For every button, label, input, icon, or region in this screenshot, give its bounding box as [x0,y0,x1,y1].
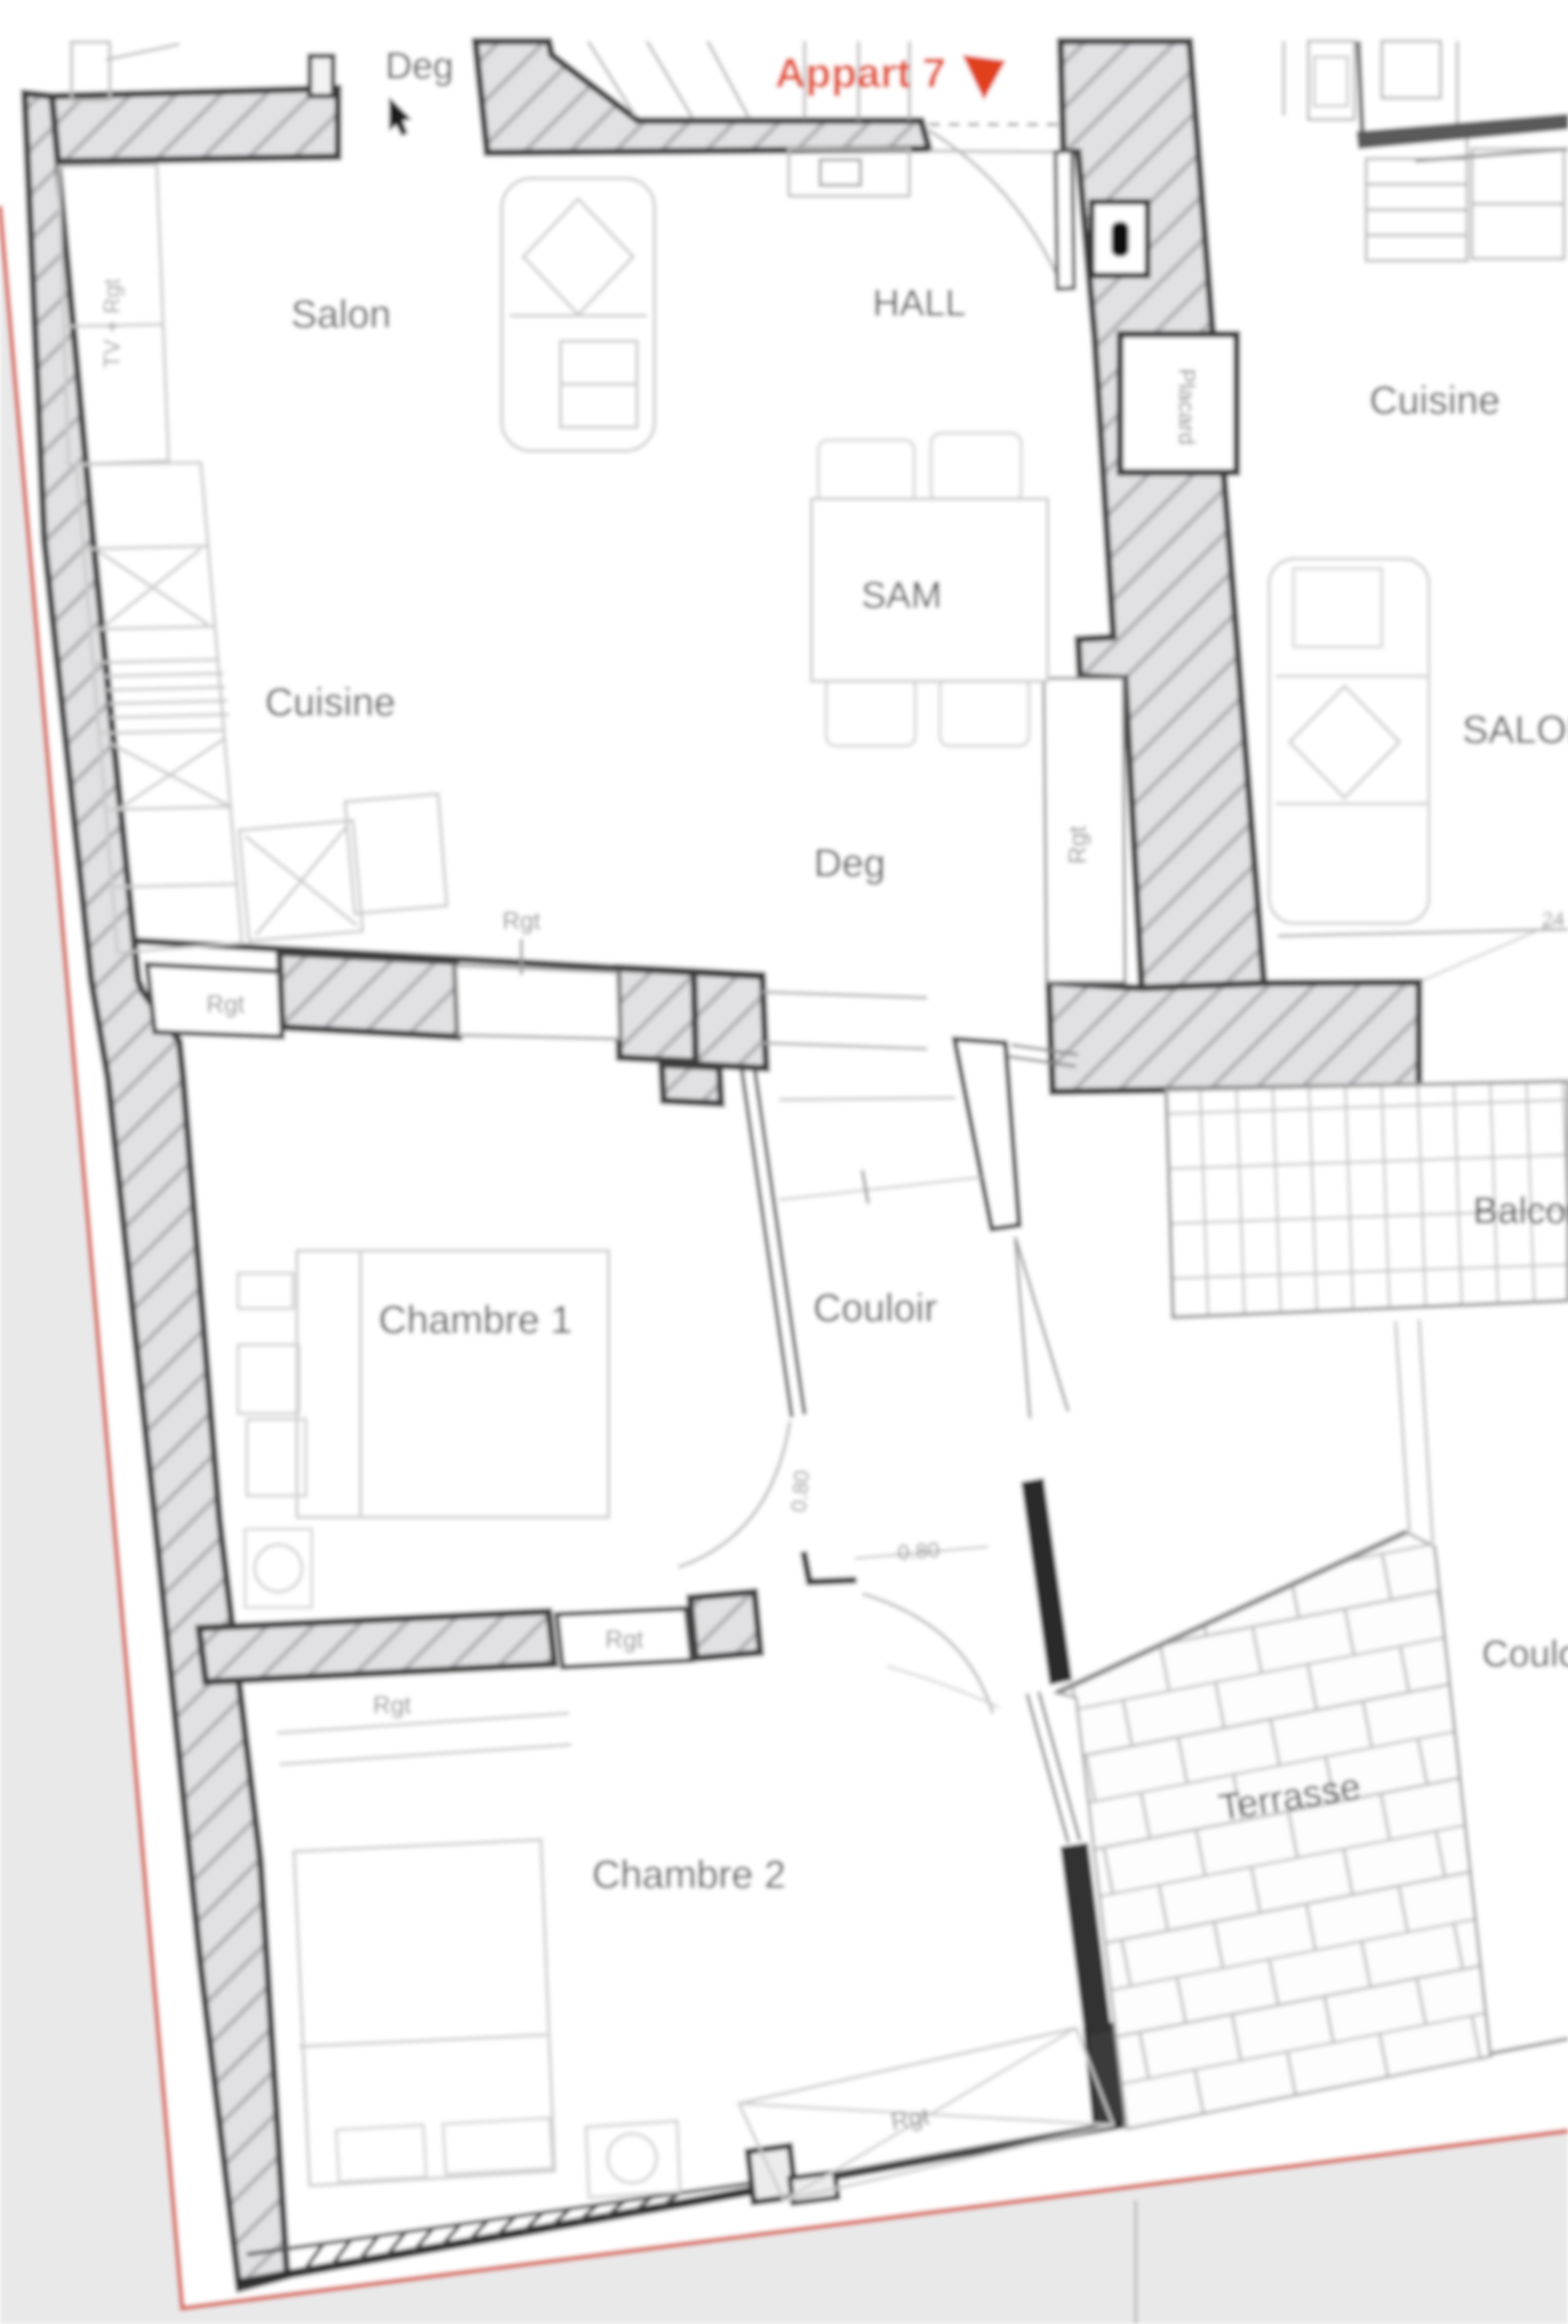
svg-text:SALON: SALON [1462,709,1568,752]
svg-text:Cuisine: Cuisine [265,681,395,724]
svg-text:Rgt: Rgt [207,991,245,1018]
svg-text:0.80: 0.80 [897,1537,941,1565]
svg-text:HALL: HALL [872,283,965,324]
svg-text:SAM: SAM [861,575,942,617]
svg-text:Appart 7: Appart 7 [775,50,946,97]
svg-text:Couloir: Couloir [1482,1634,1568,1675]
svg-text:TV + Rgt: TV + Rgt [99,278,124,369]
svg-text:Rgt: Rgt [373,1692,412,1719]
svg-text:Couloir: Couloir [813,1287,938,1330]
svg-text:Deg: Deg [385,46,454,87]
svg-text:Salon: Salon [291,293,391,336]
svg-text:Chambre 1: Chambre 1 [378,1299,572,1342]
svg-text:Rgt: Rgt [503,908,541,935]
svg-text:Cuisine: Cuisine [1369,379,1499,422]
svg-text:0.80: 0.80 [786,1469,814,1513]
svg-text:Rgt: Rgt [1064,825,1092,864]
svg-text:Balcon: Balcon [1473,1191,1568,1232]
svg-text:24: 24 [1542,909,1565,931]
svg-text:Rgt: Rgt [606,1626,644,1654]
svg-text:Deg: Deg [813,842,885,885]
svg-text:Chambre 2: Chambre 2 [592,1854,786,1897]
svg-text:Placard: Placard [1174,369,1200,445]
